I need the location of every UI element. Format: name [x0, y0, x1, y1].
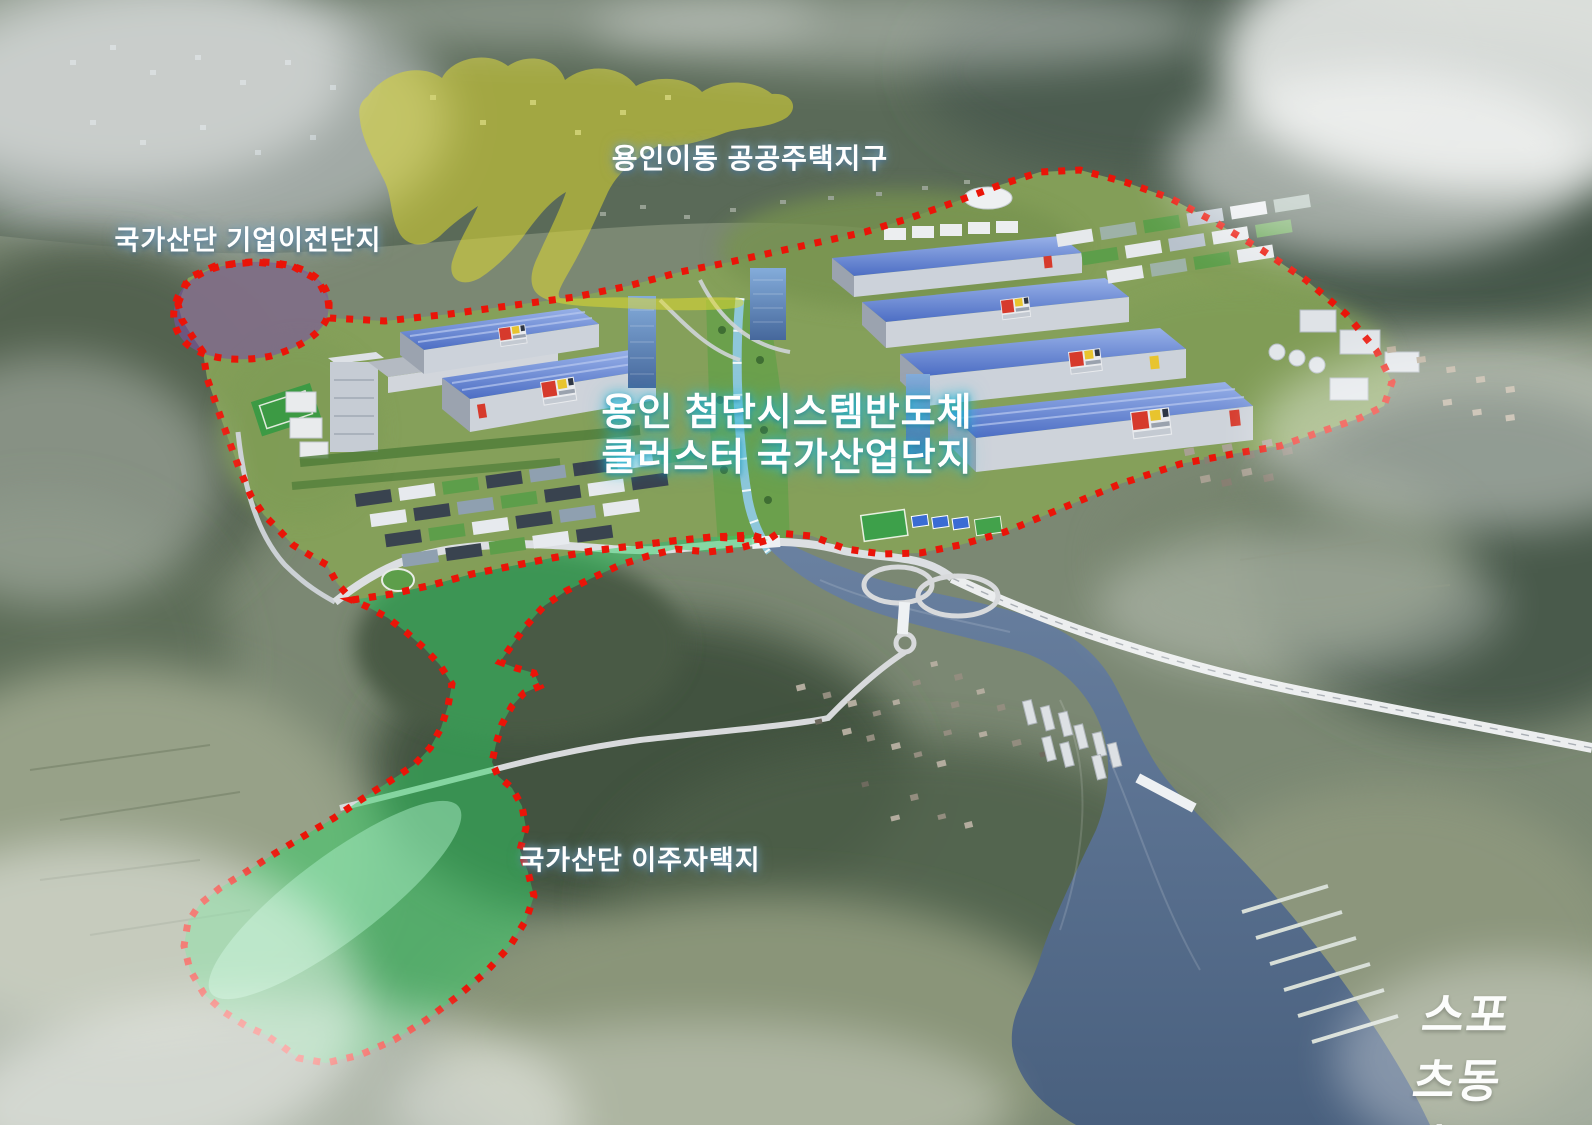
main-complex-title: 용인 첨단시스템반도체 클러스터 국가산업단지 — [601, 391, 972, 481]
main-complex-title-line2: 클러스터 국가산업단지 — [601, 436, 972, 481]
glass-tower — [750, 268, 786, 340]
storage-sphere — [1289, 350, 1305, 366]
aerial-rendering: 용인이동 공공주택지구 국가산단 기업이전단지 용인 첨단시스템반도체 클러스터… — [0, 0, 1592, 1125]
main-complex-title-line1: 용인 첨단시스템반도체 — [601, 391, 972, 436]
housing-district-label: 용인이동 공공주택지구 — [612, 137, 888, 177]
fan-building — [964, 187, 1012, 209]
bridge — [897, 602, 910, 635]
storage-sphere — [1269, 344, 1285, 360]
stadium-building — [382, 569, 414, 591]
resettlement-site-label: 국가산단 이주자택지 — [519, 839, 760, 878]
relocation-site-label: 국가산단 기업이전단지 — [115, 219, 382, 258]
